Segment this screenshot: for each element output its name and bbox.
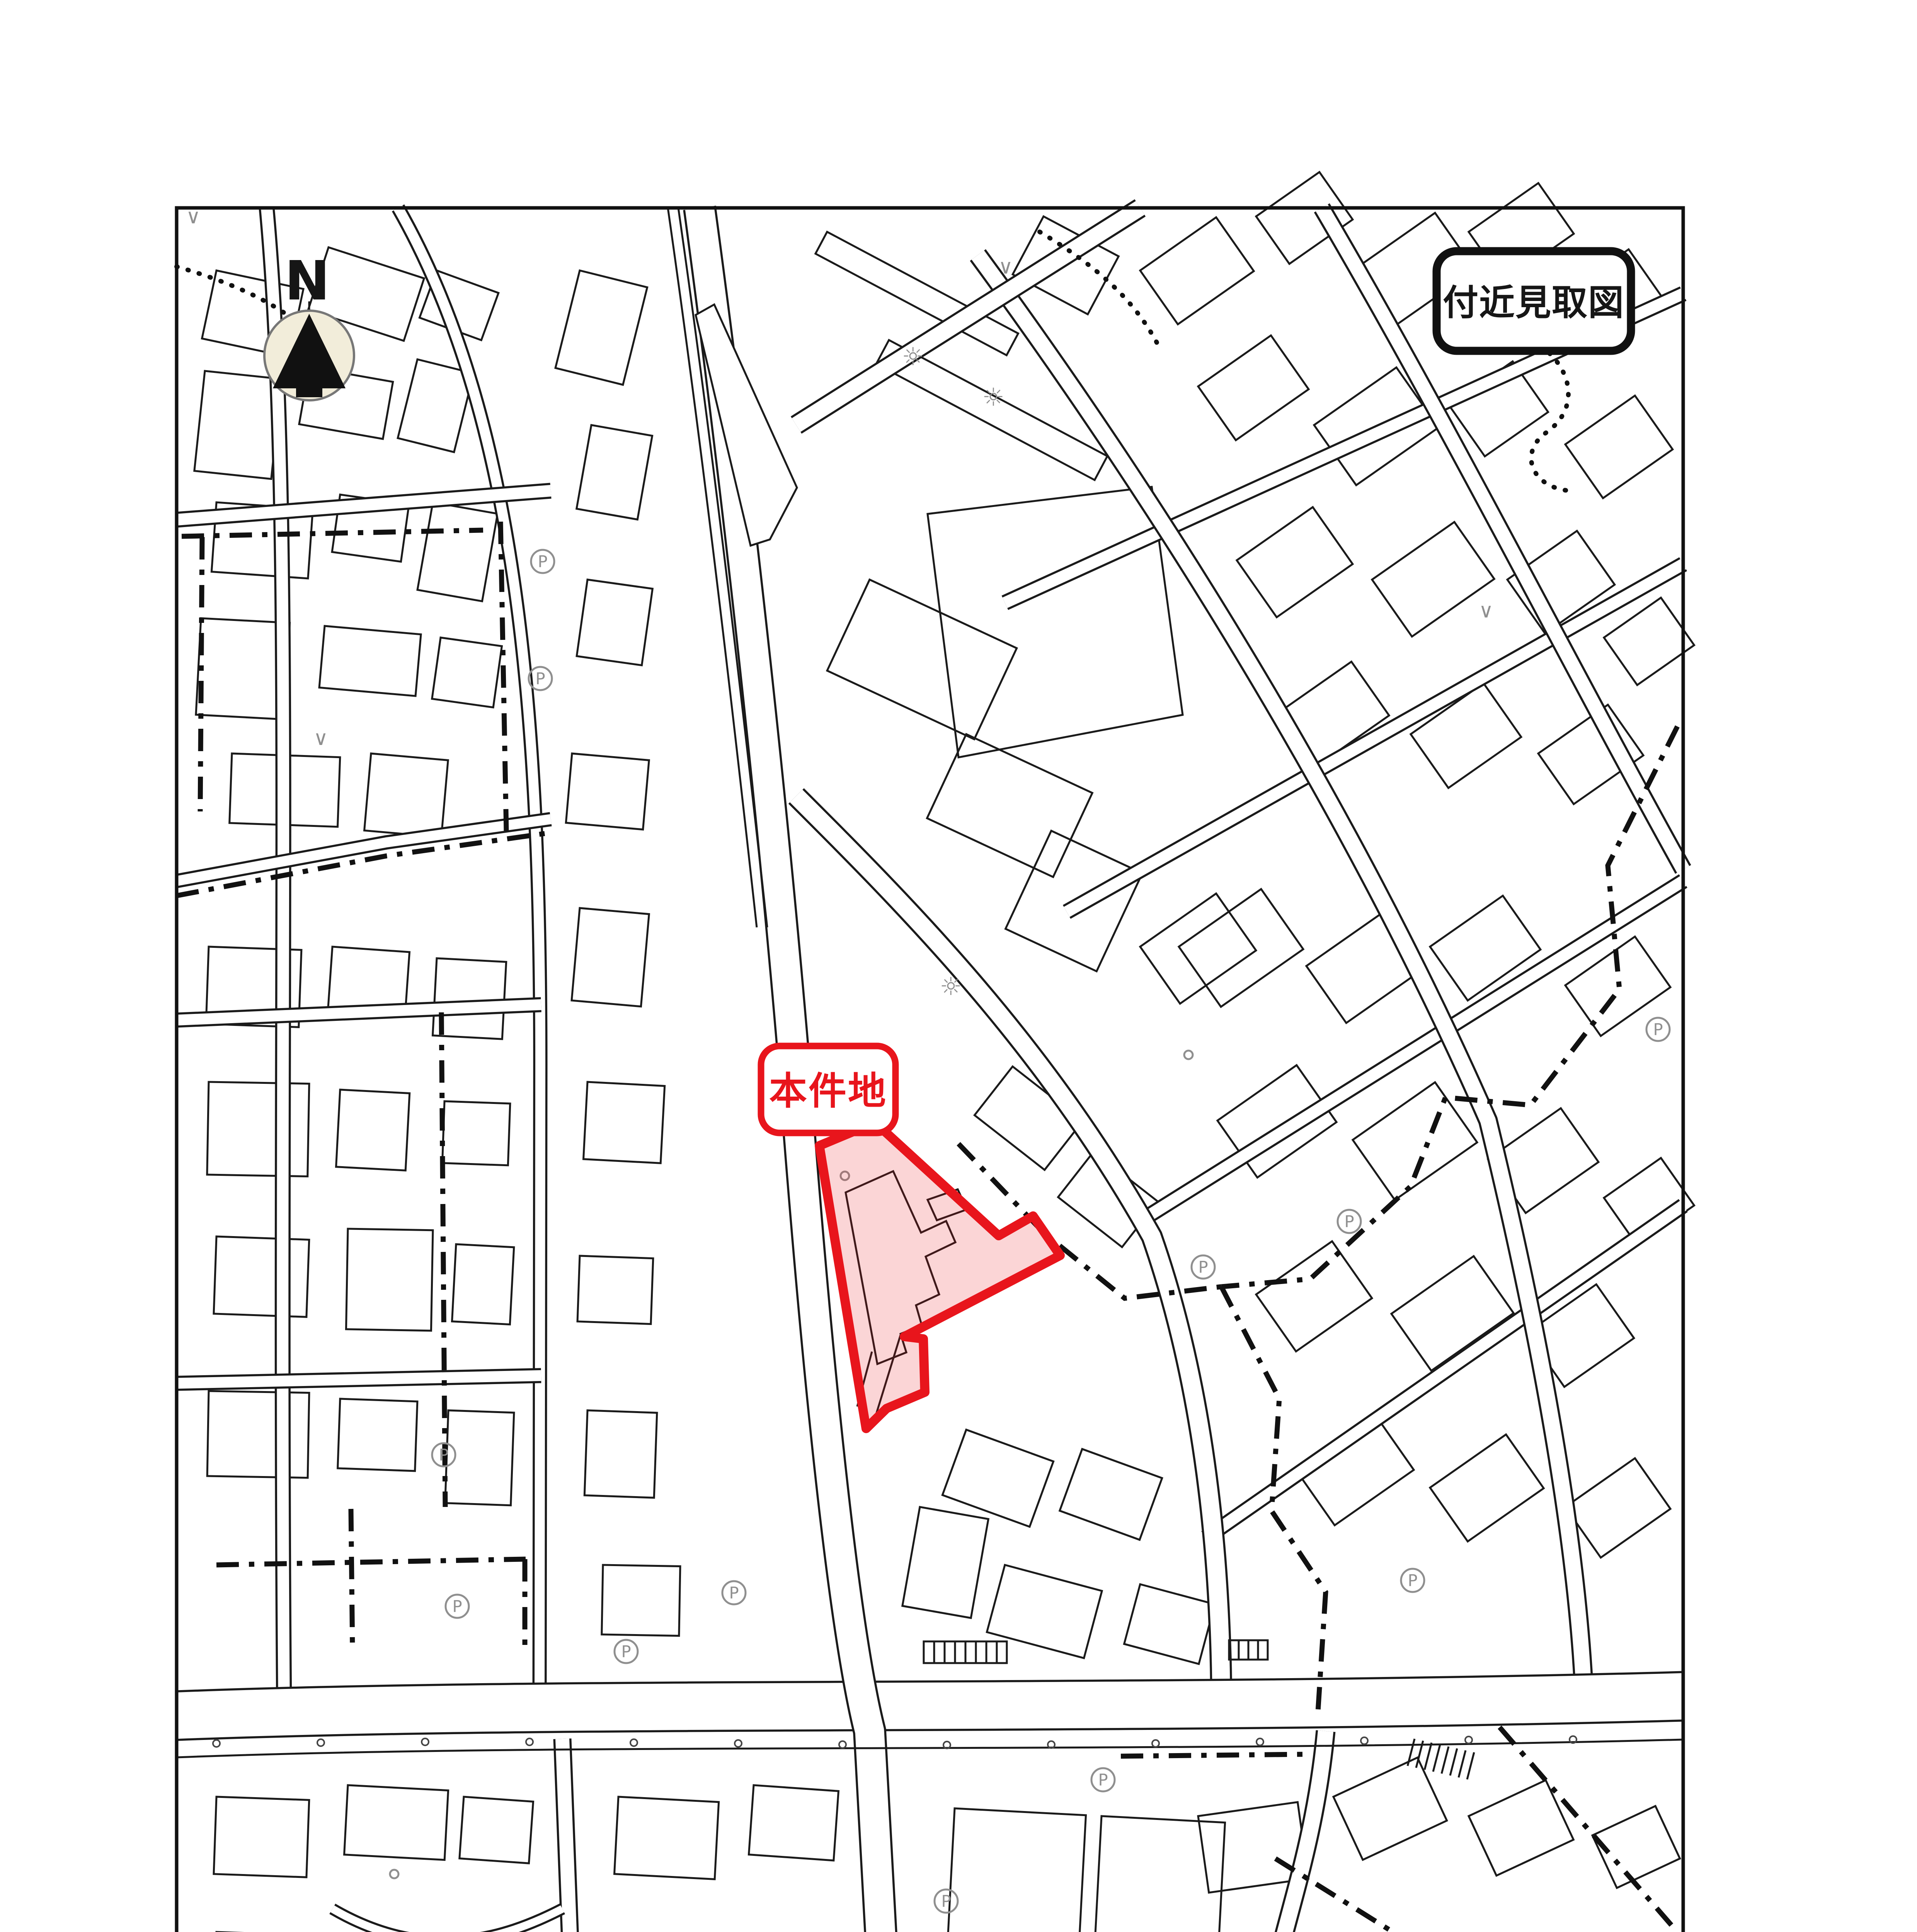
svg-text:P: P bbox=[1653, 1020, 1663, 1039]
north-label: N bbox=[284, 250, 330, 313]
svg-text:☼: ☼ bbox=[982, 383, 1004, 412]
svg-text:P: P bbox=[1408, 1571, 1417, 1590]
svg-text:P: P bbox=[621, 1642, 631, 1661]
sun-icon: ☼ ☼ ☼ bbox=[902, 343, 1004, 1001]
subject-parcel bbox=[819, 1122, 1060, 1429]
site-label: 本件地 bbox=[761, 1046, 896, 1133]
svg-text:P: P bbox=[1198, 1258, 1208, 1277]
svg-text:∨: ∨ bbox=[998, 255, 1013, 279]
svg-text:P: P bbox=[941, 1892, 951, 1911]
svg-text:P: P bbox=[535, 669, 545, 688]
roads-layer bbox=[177, 208, 1683, 1932]
svg-text:P: P bbox=[439, 1446, 448, 1464]
svg-text:∨: ∨ bbox=[313, 727, 328, 750]
svg-text:P: P bbox=[1344, 1212, 1354, 1231]
title-text: 付近見取図 bbox=[1443, 282, 1624, 323]
map-title: 付近見取図 bbox=[1437, 251, 1631, 351]
svg-text:P: P bbox=[452, 1597, 462, 1616]
svg-text:☼: ☼ bbox=[940, 973, 962, 1001]
vicinity-map-page: P P P P P P P P P P P P P P ☼ ☼ ☼ ∨ ∨ ∨ … bbox=[0, 0, 1917, 1932]
svg-text:☼: ☼ bbox=[902, 343, 924, 371]
subject-parcel-fill bbox=[819, 1122, 1060, 1429]
svg-text:P: P bbox=[1098, 1770, 1108, 1789]
svg-text:∨: ∨ bbox=[1479, 599, 1493, 622]
map-canvas: P P P P P P P P P P P P P P ☼ ☼ ☼ ∨ ∨ ∨ … bbox=[0, 0, 1917, 1932]
site-label-text: 本件地 bbox=[769, 1069, 887, 1113]
buildings-layer bbox=[194, 172, 1694, 1932]
map-symbols-layer: P P P P P P P P P P P P P P ☼ ☼ ☼ ∨ ∨ ∨ … bbox=[186, 205, 1670, 1932]
svg-text:P: P bbox=[729, 1583, 739, 1602]
svg-text:P: P bbox=[538, 552, 547, 571]
street-dot-markers bbox=[213, 1736, 1577, 1748]
